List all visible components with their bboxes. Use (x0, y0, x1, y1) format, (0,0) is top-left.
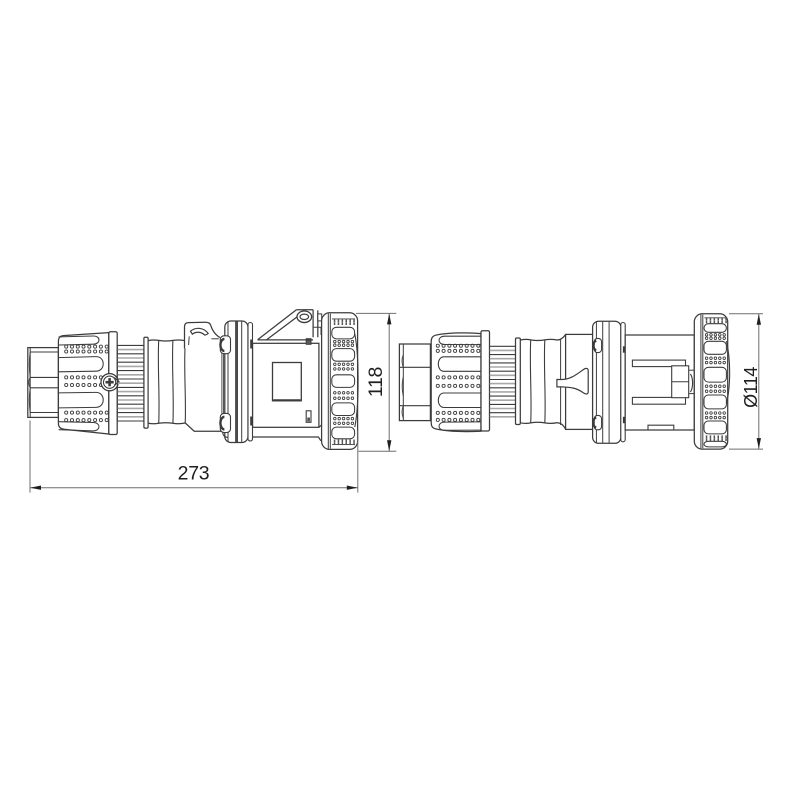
svg-text:273: 273 (178, 463, 210, 485)
svg-text:Ø114: Ø114 (741, 367, 761, 408)
svg-text:118: 118 (365, 367, 387, 397)
